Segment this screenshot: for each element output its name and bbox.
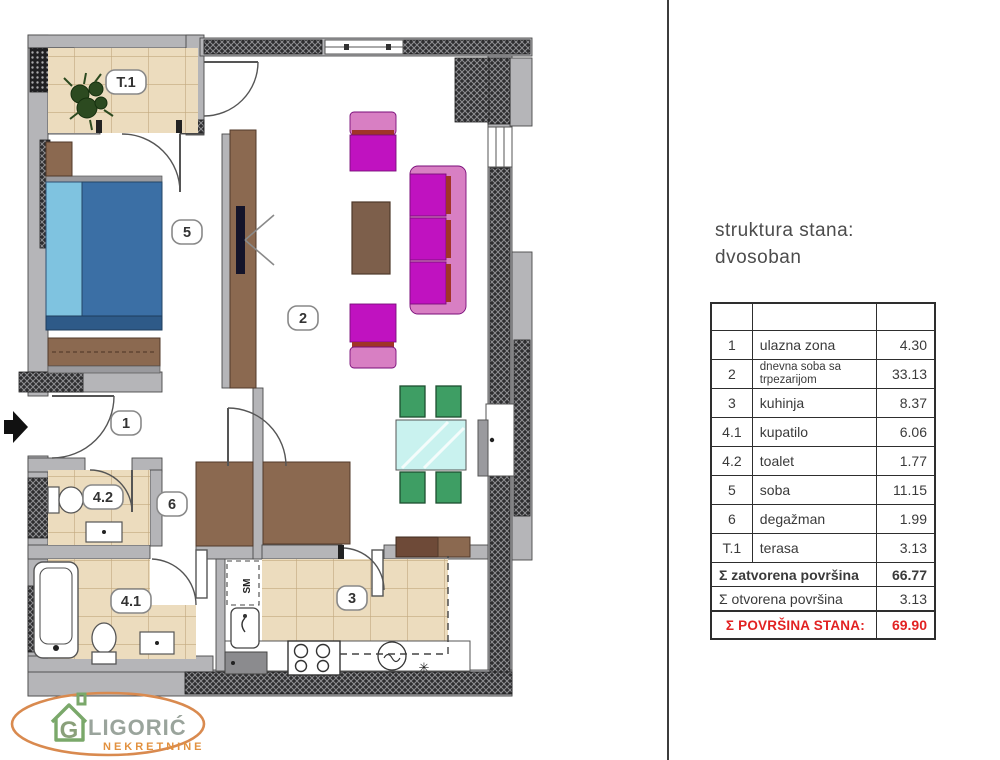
chair: [436, 472, 461, 503]
kitchen-cabinet: [438, 537, 470, 557]
table-row: 3 kuhinja 8.37: [711, 389, 935, 418]
room-label-living: 2: [288, 306, 318, 330]
svg-text:1: 1: [122, 416, 130, 432]
svg-text:6: 6: [168, 497, 176, 513]
agency-logo: G LIGORIĆ NEKRETNINE: [12, 693, 205, 755]
toilet: [59, 487, 83, 513]
toilet: [92, 623, 116, 653]
table-row: 2 dnevna soba sa trpezarijom 33.13: [711, 360, 935, 389]
logo-monogram: G: [60, 717, 79, 744]
summary-row-open: Σ otvorena površina 3.13: [711, 587, 935, 612]
chair: [436, 386, 461, 417]
kitchen-sink-round: [378, 642, 406, 670]
sideboard: [263, 462, 350, 544]
title-line-2: dvosoban: [715, 245, 854, 272]
room-label-kitchen: 3: [337, 586, 367, 610]
door-swing-clearing: [150, 559, 196, 605]
svg-text:2: 2: [299, 311, 307, 327]
armchair-bottom: [350, 304, 396, 368]
room-label-entrance: 1: [111, 411, 141, 435]
table-row: T.1 terasa 3.13: [711, 534, 935, 563]
room-label-toilet: 4.2: [83, 485, 123, 509]
right-window-upper: [488, 127, 512, 167]
bed-headboard: [46, 176, 162, 182]
bathroom-door-leaf: [196, 550, 207, 598]
dining-set: [396, 386, 466, 503]
kitchen-door-leaf: [372, 550, 383, 596]
room-label-bedroom: 5: [172, 220, 202, 244]
kitchen-cabinet: [396, 537, 438, 557]
info-panel: struktura stana: dvosoban 1 ulazna zona …: [690, 0, 990, 760]
svg-text:T.1: T.1: [116, 75, 135, 91]
balcony-door-leaf: [478, 420, 488, 476]
logo-subtitle: NEKRETNINE: [103, 741, 205, 753]
living-top-door-arc: [204, 62, 258, 116]
bed-footboard: [46, 316, 162, 330]
title-line-1: struktura stana:: [715, 218, 854, 245]
table-row: 4.1 kupatilo 6.06: [711, 418, 935, 447]
room-label-bathroom: 4.1: [111, 589, 151, 613]
table-row: 1 ulazna zona 4.30: [711, 331, 935, 360]
floor-plan-drawing: ✳ SM: [0, 0, 668, 760]
logo-name: LIGORIĆ: [88, 715, 187, 740]
bed: [82, 182, 162, 316]
floorplan-page: ✳ SM: [0, 0, 1000, 760]
table-row: 4.2 toalet 1.77: [711, 447, 935, 476]
summary-row-total: Σ POVRŠINA STANA: 69.90: [711, 611, 935, 639]
page-title: struktura stana: dvosoban: [715, 218, 854, 271]
room-label-terrace: T.1: [106, 70, 146, 94]
floor-plan: ✳ SM: [0, 0, 668, 760]
entry-arrow: [4, 411, 28, 443]
bed-pillow-side: [46, 182, 82, 316]
chair: [400, 472, 425, 503]
tv-icon: [236, 206, 245, 274]
svg-text:3: 3: [348, 591, 356, 607]
table-row: 5 soba 11.15: [711, 476, 935, 505]
coffee-table: [352, 202, 390, 274]
area-table: 1 ulazna zona 4.30 2 dnevna soba sa trpe…: [710, 302, 936, 640]
sofa: [410, 166, 466, 314]
sheet-divider-line: [667, 0, 669, 760]
summary-row-closed: Σ zatvorena površina 66.77: [711, 563, 935, 587]
room-label-hall: 6: [157, 492, 187, 516]
table-row: 6 degažman 1.99: [711, 505, 935, 534]
wardrobe: [196, 462, 253, 546]
table-header-row: [711, 303, 935, 331]
armchair-top: [350, 112, 396, 171]
svg-text:4.1: 4.1: [121, 594, 141, 610]
washing-machine-label: SM: [242, 579, 253, 594]
svg-text:4.2: 4.2: [93, 490, 113, 506]
chair: [400, 386, 425, 417]
svg-text:5: 5: [183, 225, 191, 241]
freezer-icon: ✳: [419, 660, 430, 675]
entry-door-arc: [52, 396, 114, 458]
nightstand: [46, 142, 72, 176]
